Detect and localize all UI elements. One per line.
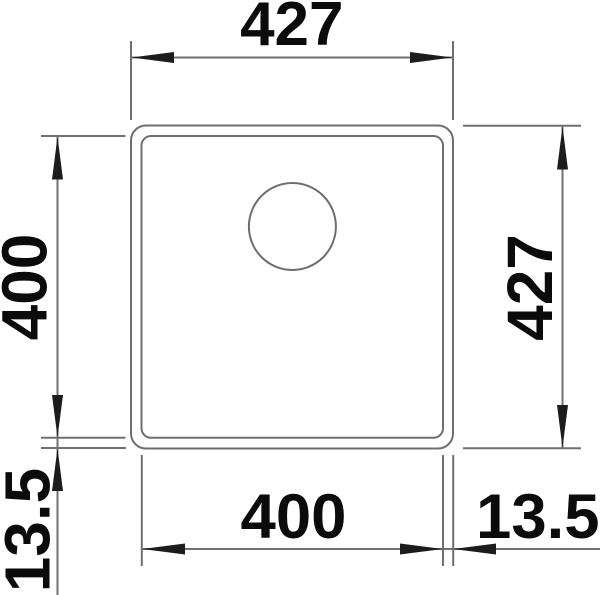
svg-text:13.5: 13.5 [0,468,64,593]
svg-text:427: 427 [240,0,343,59]
svg-text:427: 427 [494,234,566,341]
svg-text:400: 400 [241,482,347,552]
svg-text:400: 400 [0,234,61,341]
svg-text:13.5: 13.5 [476,482,600,552]
